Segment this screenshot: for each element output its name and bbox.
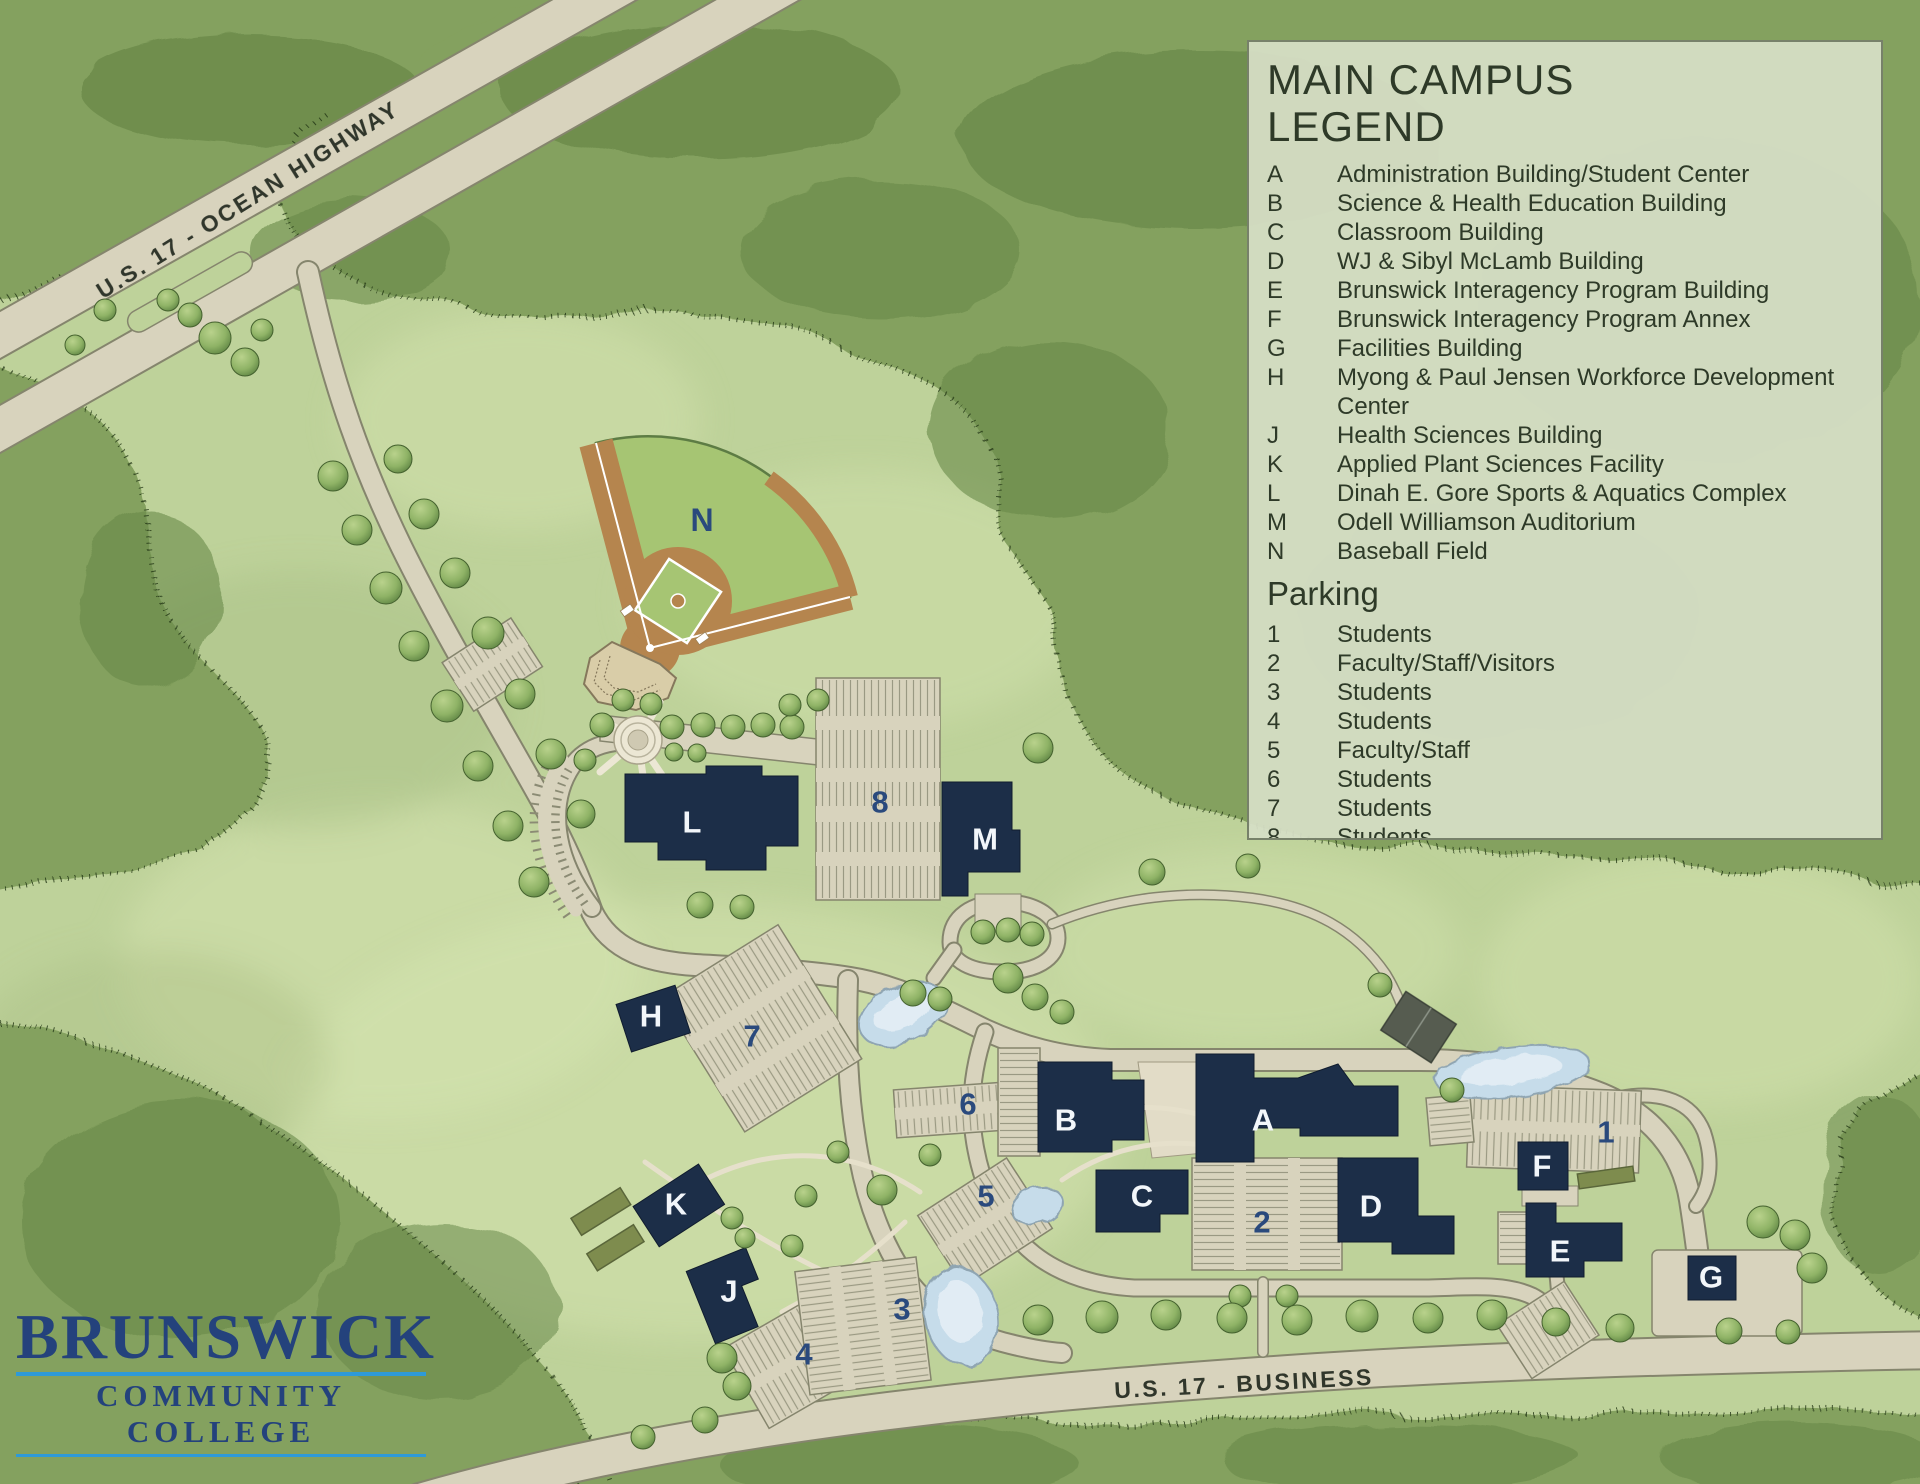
parking-lot-b-west <box>998 1048 1040 1156</box>
legend-desc: Students <box>1337 794 1863 823</box>
legend-desc: Applied Plant Sciences Facility <box>1337 450 1863 479</box>
legend-key: 1 <box>1267 620 1337 649</box>
legend-row-F: FBrunswick Interagency Program Annex <box>1267 305 1863 334</box>
legend-key: G <box>1267 334 1337 363</box>
legend-desc: Classroom Building <box>1337 218 1863 247</box>
legend-desc: Science & Health Education Building <box>1337 189 1863 218</box>
legend-row-E: EBrunswick Interagency Program Building <box>1267 276 1863 305</box>
legend-desc: WJ & Sibyl McLamb Building <box>1337 247 1863 276</box>
legend-parking-heading: Parking <box>1267 574 1863 614</box>
legend-key: B <box>1267 189 1337 218</box>
legend-desc: Students <box>1337 707 1863 736</box>
legend-row-B: BScience & Health Education Building <box>1267 189 1863 218</box>
legend-desc: Brunswick Interagency Program Annex <box>1337 305 1863 334</box>
legend-key: F <box>1267 305 1337 334</box>
legend-row-M: MOdell Williamson Auditorium <box>1267 508 1863 537</box>
legend-row-L: LDinah E. Gore Sports & Aquatics Complex <box>1267 479 1863 508</box>
legend-key: 6 <box>1267 765 1337 794</box>
legend-desc: Students <box>1337 620 1863 649</box>
map-label-parking-7: 7 <box>743 1021 760 1052</box>
legend-key: K <box>1267 450 1337 479</box>
legend-row-3: 3Students <box>1267 678 1863 707</box>
legend-desc: Myong & Paul Jensen Workforce Developmen… <box>1337 363 1863 421</box>
legend-key: N <box>1267 537 1337 566</box>
legend-row-8: 8Students <box>1267 823 1863 840</box>
legend-key: 8 <box>1267 823 1337 840</box>
map-label-parking-6: 6 <box>959 1089 976 1120</box>
parking-lot-3 <box>795 1257 931 1395</box>
legend-row-A: AAdministration Building/Student Center <box>1267 160 1863 189</box>
legend-desc: Odell Williamson Auditorium <box>1337 508 1863 537</box>
map-label-building-f: F <box>1533 1151 1552 1182</box>
legend-key: 2 <box>1267 649 1337 678</box>
map-label-building-a: A <box>1252 1105 1274 1136</box>
legend-key: 3 <box>1267 678 1337 707</box>
logo-line1: BRUNSWICK <box>16 1304 426 1370</box>
legend-parking-list: 1Students2Faculty/Staff/Visitors3Student… <box>1267 620 1863 840</box>
campus-map: ABCDEFGHJKLMN12345678 U.S. 17 - OCEAN HI… <box>0 0 1920 1484</box>
legend-title-line2: LEGEND <box>1267 103 1863 150</box>
logo-rule-bottom <box>16 1454 426 1457</box>
legend-row-5: 5Faculty/Staff <box>1267 736 1863 765</box>
legend-desc: Students <box>1337 765 1863 794</box>
legend-key: 7 <box>1267 794 1337 823</box>
map-label-field-n: N <box>690 504 713 536</box>
legend-desc: Faculty/Staff/Visitors <box>1337 649 1863 678</box>
parking-lot-6 <box>893 1082 1008 1138</box>
legend-desc: Brunswick Interagency Program Building <box>1337 276 1863 305</box>
legend-key: C <box>1267 218 1337 247</box>
legend-key: D <box>1267 247 1337 276</box>
map-label-building-k: K <box>665 1189 687 1220</box>
logo-rule-top <box>16 1372 426 1376</box>
legend-row-6: 6Students <box>1267 765 1863 794</box>
legend-row-C: CClassroom Building <box>1267 218 1863 247</box>
map-label-building-h: H <box>640 1001 662 1032</box>
map-label-building-c: C <box>1131 1181 1153 1212</box>
legend-desc: Students <box>1337 678 1863 707</box>
map-label-building-l: L <box>683 807 702 838</box>
legend-row-J: JHealth Sciences Building <box>1267 421 1863 450</box>
map-label-parking-3: 3 <box>893 1294 910 1325</box>
legend-key: 4 <box>1267 707 1337 736</box>
map-label-building-m: M <box>972 824 998 855</box>
legend-row-7: 7Students <box>1267 794 1863 823</box>
legend-title: MAIN CAMPUS LEGEND <box>1267 56 1863 150</box>
legend-desc: Health Sciences Building <box>1337 421 1863 450</box>
map-label-parking-1: 1 <box>1597 1117 1614 1148</box>
legend-desc: Facilities Building <box>1337 334 1863 363</box>
logo-line2: COMMUNITY COLLEGE <box>16 1378 426 1450</box>
legend-row-4: 4Students <box>1267 707 1863 736</box>
legend-row-1: 1Students <box>1267 620 1863 649</box>
map-label-building-e: E <box>1550 1236 1571 1267</box>
map-label-parking-5: 5 <box>977 1181 994 1212</box>
legend-desc: Faculty/Staff <box>1337 736 1863 765</box>
legend-row-H: HMyong & Paul Jensen Workforce Developme… <box>1267 363 1863 421</box>
map-label-building-b: B <box>1055 1105 1077 1136</box>
map-label-building-d: D <box>1360 1191 1382 1222</box>
legend-title-line1: MAIN CAMPUS <box>1267 56 1863 103</box>
school-logo: BRUNSWICK COMMUNITY COLLEGE <box>16 1304 426 1457</box>
legend-key: J <box>1267 421 1337 450</box>
legend-key: L <box>1267 479 1337 508</box>
legend-key: E <box>1267 276 1337 305</box>
legend-key: 5 <box>1267 736 1337 765</box>
map-label-parking-2: 2 <box>1253 1207 1270 1238</box>
legend-row-N: NBaseball Field <box>1267 537 1863 566</box>
map-label-parking-8: 8 <box>871 787 888 818</box>
legend-building-list: AAdministration Building/Student CenterB… <box>1267 160 1863 566</box>
legend-desc: Administration Building/Student Center <box>1337 160 1863 189</box>
legend-row-K: KApplied Plant Sciences Facility <box>1267 450 1863 479</box>
legend-desc: Baseball Field <box>1337 537 1863 566</box>
map-label-parking-4: 4 <box>795 1339 812 1370</box>
map-label-building-j: J <box>720 1276 737 1307</box>
legend-key: M <box>1267 508 1337 537</box>
map-label-building-g: G <box>1699 1262 1723 1293</box>
legend-row-2: 2Faculty/Staff/Visitors <box>1267 649 1863 678</box>
legend-row-G: GFacilities Building <box>1267 334 1863 363</box>
legend-key: A <box>1267 160 1337 189</box>
legend-desc: Students <box>1337 823 1863 840</box>
legend-row-D: DWJ & Sibyl McLamb Building <box>1267 247 1863 276</box>
legend-key: H <box>1267 363 1337 421</box>
legend-desc: Dinah E. Gore Sports & Aquatics Complex <box>1337 479 1863 508</box>
legend-panel: MAIN CAMPUS LEGEND AAdministration Build… <box>1247 40 1883 840</box>
